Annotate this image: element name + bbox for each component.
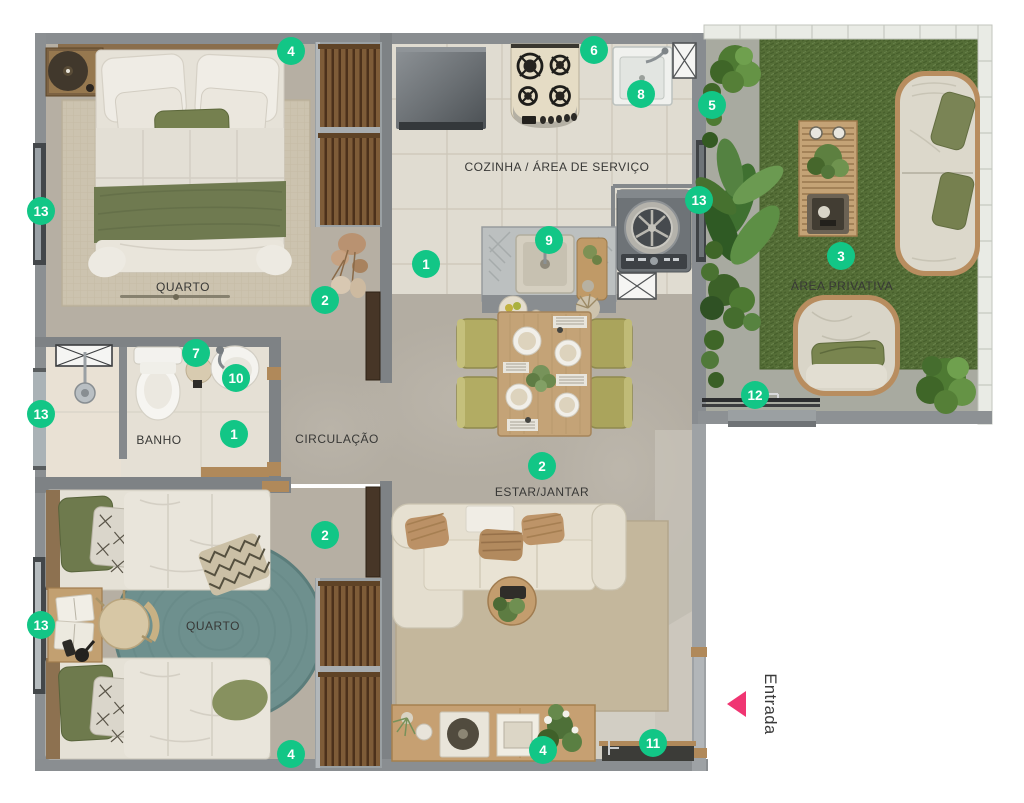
svg-text:1: 1: [422, 257, 430, 272]
svg-text:COZINHA / ÁREA DE SERVIÇO: COZINHA / ÁREA DE SERVIÇO: [465, 159, 650, 174]
svg-text:3: 3: [837, 249, 845, 264]
svg-text:7: 7: [192, 346, 200, 361]
svg-text:CIRCULAÇÃO: CIRCULAÇÃO: [295, 432, 379, 446]
svg-text:12: 12: [747, 388, 762, 403]
svg-text:2: 2: [321, 528, 329, 543]
svg-text:9: 9: [545, 233, 553, 248]
svg-text:Entrada: Entrada: [761, 673, 779, 735]
svg-text:4: 4: [287, 44, 295, 59]
svg-text:QUARTO: QUARTO: [186, 619, 240, 633]
svg-text:1: 1: [230, 427, 238, 442]
svg-text:QUARTO: QUARTO: [156, 280, 210, 294]
svg-text:2: 2: [538, 459, 546, 474]
svg-text:13: 13: [33, 407, 49, 422]
svg-text:ÁREA PRIVATIVA: ÁREA PRIVATIVA: [791, 278, 893, 293]
svg-text:ESTAR/JANTAR: ESTAR/JANTAR: [495, 485, 589, 499]
svg-text:13: 13: [691, 193, 707, 208]
svg-text:4: 4: [539, 743, 547, 758]
svg-text:13: 13: [33, 204, 49, 219]
svg-text:5: 5: [708, 98, 716, 113]
svg-text:13: 13: [33, 618, 49, 633]
svg-text:6: 6: [590, 43, 598, 58]
svg-text:4: 4: [287, 747, 295, 762]
svg-text:BANHO: BANHO: [136, 433, 181, 447]
svg-text:10: 10: [228, 371, 243, 386]
svg-text:2: 2: [321, 293, 329, 308]
svg-text:11: 11: [646, 736, 661, 751]
svg-text:8: 8: [637, 87, 645, 102]
